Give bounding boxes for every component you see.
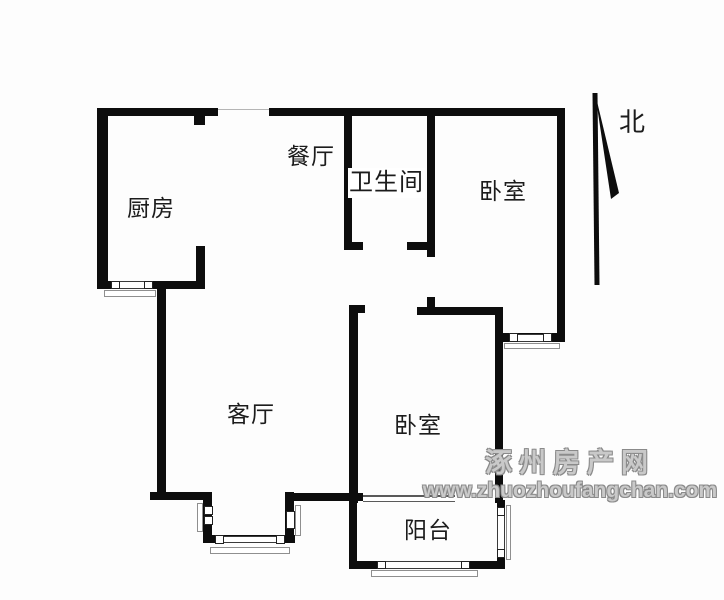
wall-bathroom-south-left [344, 242, 363, 250]
floor-plan: 厨房 餐厅 卫生间 卧室 客厅 卧室 阳台 北 涿州房产网 www.zhuozh… [0, 0, 724, 600]
bay-side-window-right [286, 511, 295, 529]
balcony-window-sill [371, 570, 478, 577]
wall-bedroom-south-east [495, 307, 503, 503]
wall-west-exterior [97, 108, 108, 289]
wall-kitchen-door-jamb [194, 114, 205, 125]
bedroom-north-window-pane-right [543, 333, 552, 342]
kitchen-window-sill [104, 290, 156, 297]
kitchen-label: 厨房 [127, 196, 175, 221]
wall-bedroom-south-top-stub [349, 305, 365, 313]
bay-window-sill [210, 547, 290, 554]
wall-balcony-west [349, 500, 357, 569]
entry-door-opening [218, 109, 269, 110]
watermark: 涿州房产网 www.zhuozhoufangchan.com [420, 450, 720, 502]
bay-side-window-left-b [204, 516, 213, 525]
balcony-window-east-pane-bottom [497, 549, 505, 558]
bedroom-south-label: 卧室 [394, 413, 442, 438]
wall-bedroom-south-top [417, 307, 503, 315]
living-room-label: 客厅 [227, 402, 275, 427]
compass: 北 [585, 85, 655, 295]
bedroom-north-door-marker [427, 241, 435, 251]
balcony-window-east-sill [506, 505, 511, 560]
wall-east-exterior [557, 108, 565, 342]
wall-bathroom-east [427, 112, 435, 257]
wall-bedroom-south-west [349, 305, 358, 503]
wall-kitchen-right-lower [196, 246, 205, 289]
bay-window-pane-right [276, 535, 285, 544]
watermark-site-name: 涿州房产网 [420, 450, 720, 477]
bay-side-sill-right [295, 505, 301, 536]
wall-bathroom-south-right [407, 242, 427, 250]
bedroom-north-window-sill [504, 343, 560, 349]
kitchen-window-pane-left [111, 281, 120, 289]
dining-label: 餐厅 [287, 144, 335, 169]
north-label: 北 [619, 102, 645, 139]
balcony-label: 阳台 [404, 518, 452, 543]
bay-window-bottom [215, 536, 285, 543]
balcony-sliding-door [363, 495, 455, 502]
bay-side-sill-left [197, 503, 203, 532]
balcony-window-east-pane-top [497, 507, 505, 516]
bedroom-north-window-pane-left [509, 333, 518, 342]
balcony-window-pane-left [377, 561, 386, 569]
wall-living-west [157, 281, 166, 500]
watermark-site-url: www.zhuozhoufangchan.com [420, 479, 720, 502]
bay-window-pane-left [215, 535, 224, 544]
wall-living-south-left [150, 492, 205, 500]
bay-side-window-left-a [204, 506, 213, 515]
wall-top-right [269, 108, 565, 116]
bathroom-label: 卫生间 [348, 168, 425, 198]
balcony-window-bottom [377, 561, 470, 569]
balcony-window-pane-right [461, 561, 470, 569]
wall-bedroom-south-top-tab [427, 297, 435, 307]
bedroom-north-label: 卧室 [479, 179, 527, 204]
kitchen-window-pane-right [144, 281, 153, 289]
